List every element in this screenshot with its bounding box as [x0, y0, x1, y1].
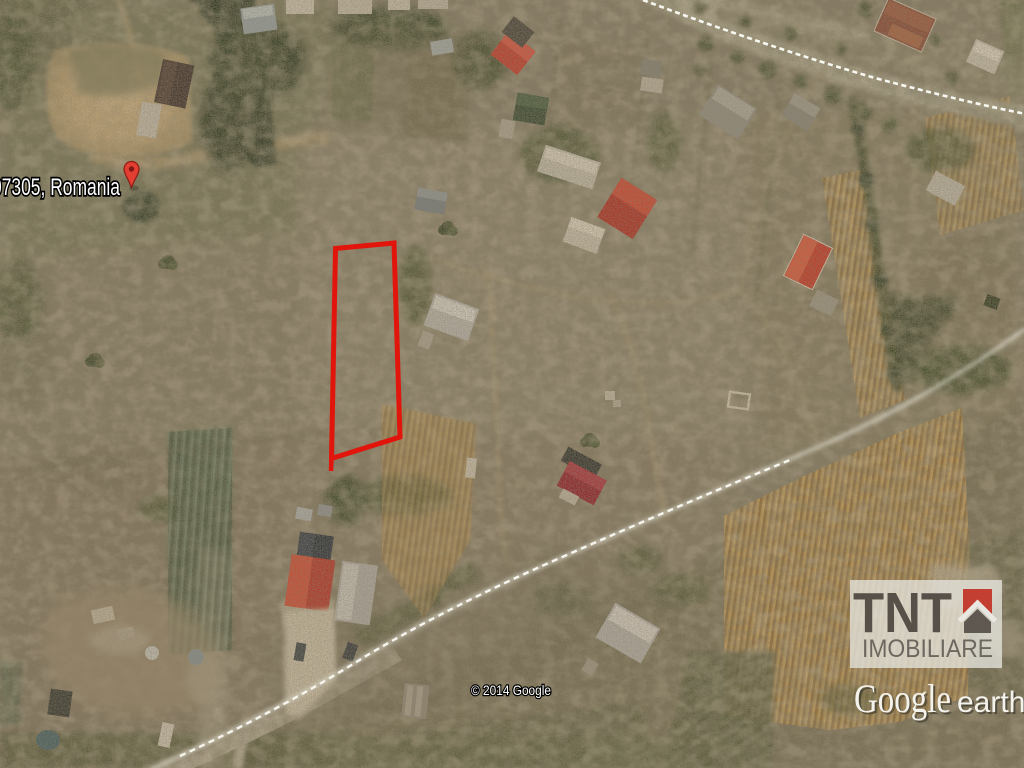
svg-text:Google: Google [854, 676, 951, 721]
svg-text:IMOBILIARE: IMOBILIARE [862, 635, 993, 663]
svg-text:earth: earth [957, 686, 1024, 719]
svg-text:07305, Romania: 07305, Romania [0, 174, 120, 201]
svg-text:© 2014 Google: © 2014 Google [471, 682, 551, 698]
